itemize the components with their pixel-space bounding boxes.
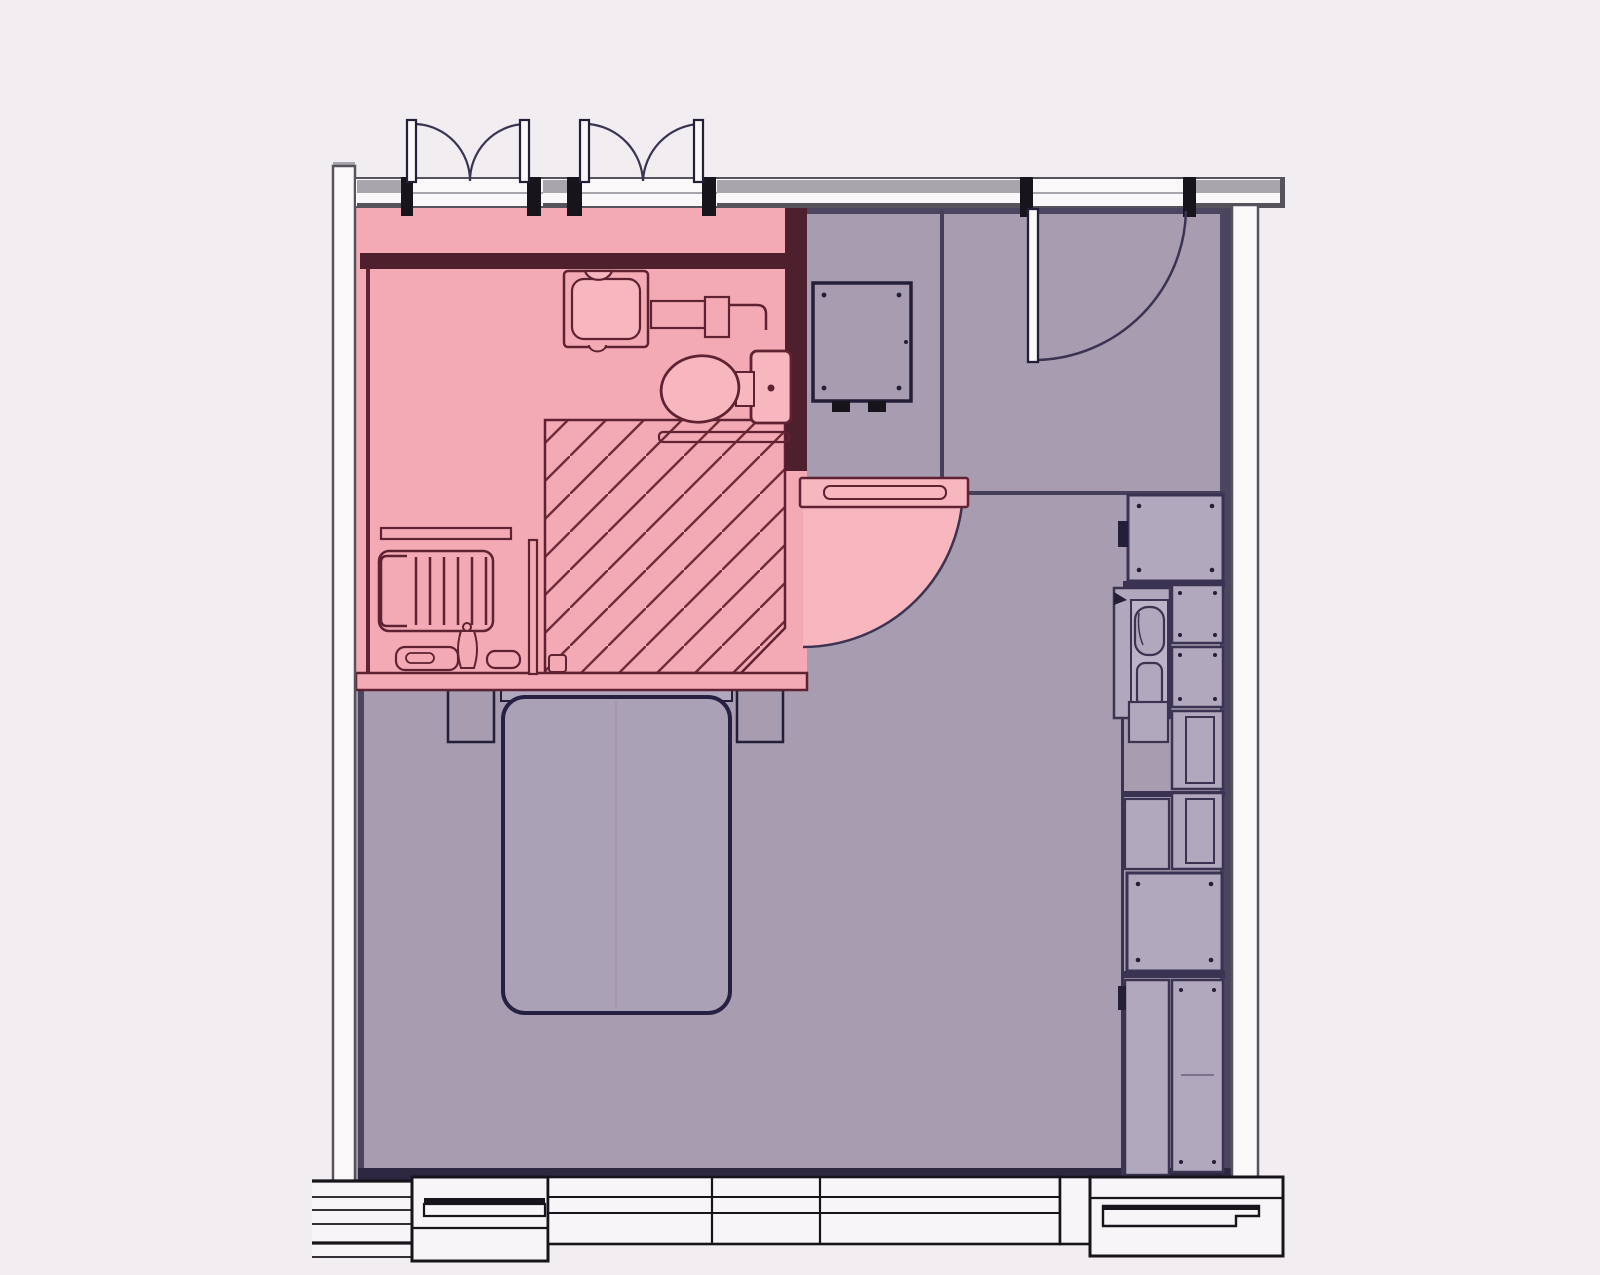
drain: [589, 345, 606, 351]
cabinet-square: [1127, 873, 1222, 971]
storage-column: [1114, 495, 1225, 1177]
door-leaf: [407, 120, 416, 182]
window-band: [312, 1177, 1283, 1261]
radiator-shelf: [381, 528, 511, 539]
wall-cabinet-body: [813, 283, 911, 401]
sill-line: [568, 192, 717, 194]
door-leaf: [694, 120, 703, 182]
divider: [1122, 971, 1225, 978]
window-segment-b: [412, 1177, 548, 1261]
shower-glass-panel: [529, 540, 537, 674]
flush-button: [768, 385, 775, 392]
panel-hinge-tab: [1118, 986, 1126, 1010]
washbasin: [564, 271, 648, 351]
zone-partition-vertical: [940, 210, 944, 493]
window-segment-d: [1060, 1177, 1090, 1244]
shower-cup: [549, 655, 566, 672]
bathroom-door: [800, 478, 968, 507]
sink-tray: [1137, 663, 1162, 707]
kitchenette-sink: [1114, 588, 1170, 718]
french-doors-left: [407, 120, 529, 182]
soap-dish: [487, 651, 520, 668]
bathroom-wall-bottom: [356, 673, 807, 690]
sill-line: [1033, 192, 1183, 194]
cabinet-hinge-tab: [1118, 521, 1128, 547]
french-doors-right: [580, 120, 703, 182]
tall-panel-right: [1172, 980, 1223, 1172]
entry-door-leaf: [1028, 209, 1038, 362]
window-segment-c: [548, 1177, 1060, 1244]
right-corridor-wall: [1232, 205, 1258, 1180]
left-wall: [333, 166, 355, 1181]
floor-plan-canvas: [0, 0, 1600, 1275]
bathroom-wall-right: [785, 205, 807, 471]
cabinet-c-panel: [1186, 717, 1214, 783]
cabinet-mid-left: [1125, 799, 1169, 869]
wall-shadow-top: [807, 207, 1223, 214]
nightstand-left: [448, 690, 494, 742]
tall-panel-left: [1125, 980, 1169, 1175]
door-leaf: [580, 120, 589, 182]
shower-hatched-area: [545, 420, 785, 673]
cabinet-small-box: [1129, 702, 1168, 742]
bathroom-wall-top: [360, 253, 807, 269]
door-leaf: [800, 478, 968, 507]
floor-plan-page: [0, 0, 1600, 1275]
nightstand-right: [737, 690, 783, 742]
bathroom-wall-left: [366, 269, 370, 677]
wall-end-cap: [1280, 178, 1284, 207]
wall-cabinet: [813, 283, 911, 412]
door-leaf: [520, 120, 529, 182]
cabinet-mid-panel: [1186, 799, 1214, 863]
cabinet-foot: [832, 401, 850, 412]
cabinet-foot: [868, 401, 886, 412]
cabinet-top: [1128, 495, 1223, 581]
bottle-cap: [463, 623, 471, 631]
bottle: [458, 631, 477, 668]
sill-line: [402, 192, 543, 194]
wall-shadow-left: [358, 690, 364, 1170]
